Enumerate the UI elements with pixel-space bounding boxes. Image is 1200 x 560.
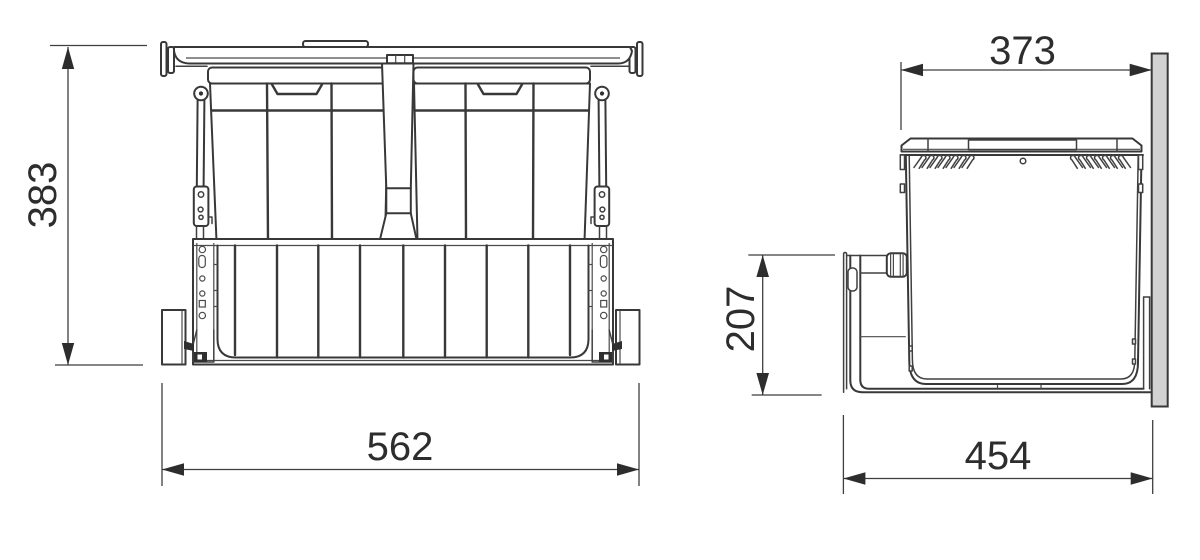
side-top-width-label: 373 [989,29,1056,73]
side-depth-label: 454 [965,434,1032,478]
right-bin [414,68,591,242]
rim-clip-left [900,155,904,170]
rim-handle-groove [969,140,1077,150]
dimension-side-depth: 454 [843,415,1152,494]
bin-side [906,155,1142,384]
cabinet-door-panel [1152,54,1168,407]
dimension-side-top-width: 373 [901,29,1152,130]
base-tray [184,239,622,365]
rail-end-cap-left-outer [161,42,167,76]
side-rear-height-label: 207 [719,286,763,353]
waste-bin-technical-drawing: 383 562 [0,0,1200,560]
lid-rim-side [902,139,1142,152]
dimension-front-height: 383 [21,46,147,366]
left-bin [208,68,389,242]
front-view: 383 562 [21,41,643,486]
foot-left [162,310,186,365]
rail-center-connector [387,55,413,63]
lift-arm-left [194,87,212,239]
front-height-label: 383 [21,162,65,229]
technical-drawing-page: 383 562 [0,0,1200,560]
rim-clip-right [1139,155,1143,170]
damper-roller [887,253,907,276]
dimension-front-width: 562 [162,383,639,486]
dimension-side-rear-height: 207 [719,255,835,395]
rail-end-cap-right-outer [637,42,643,76]
front-width-label: 562 [367,425,434,469]
center-post [380,64,418,242]
front-hook-tab [848,268,857,291]
lift-arm-right [591,87,609,239]
side-view: 373 207 454 [719,29,1168,494]
foot-right [616,310,640,365]
right-bin-rim [414,68,591,84]
left-bin-rim [208,68,389,84]
